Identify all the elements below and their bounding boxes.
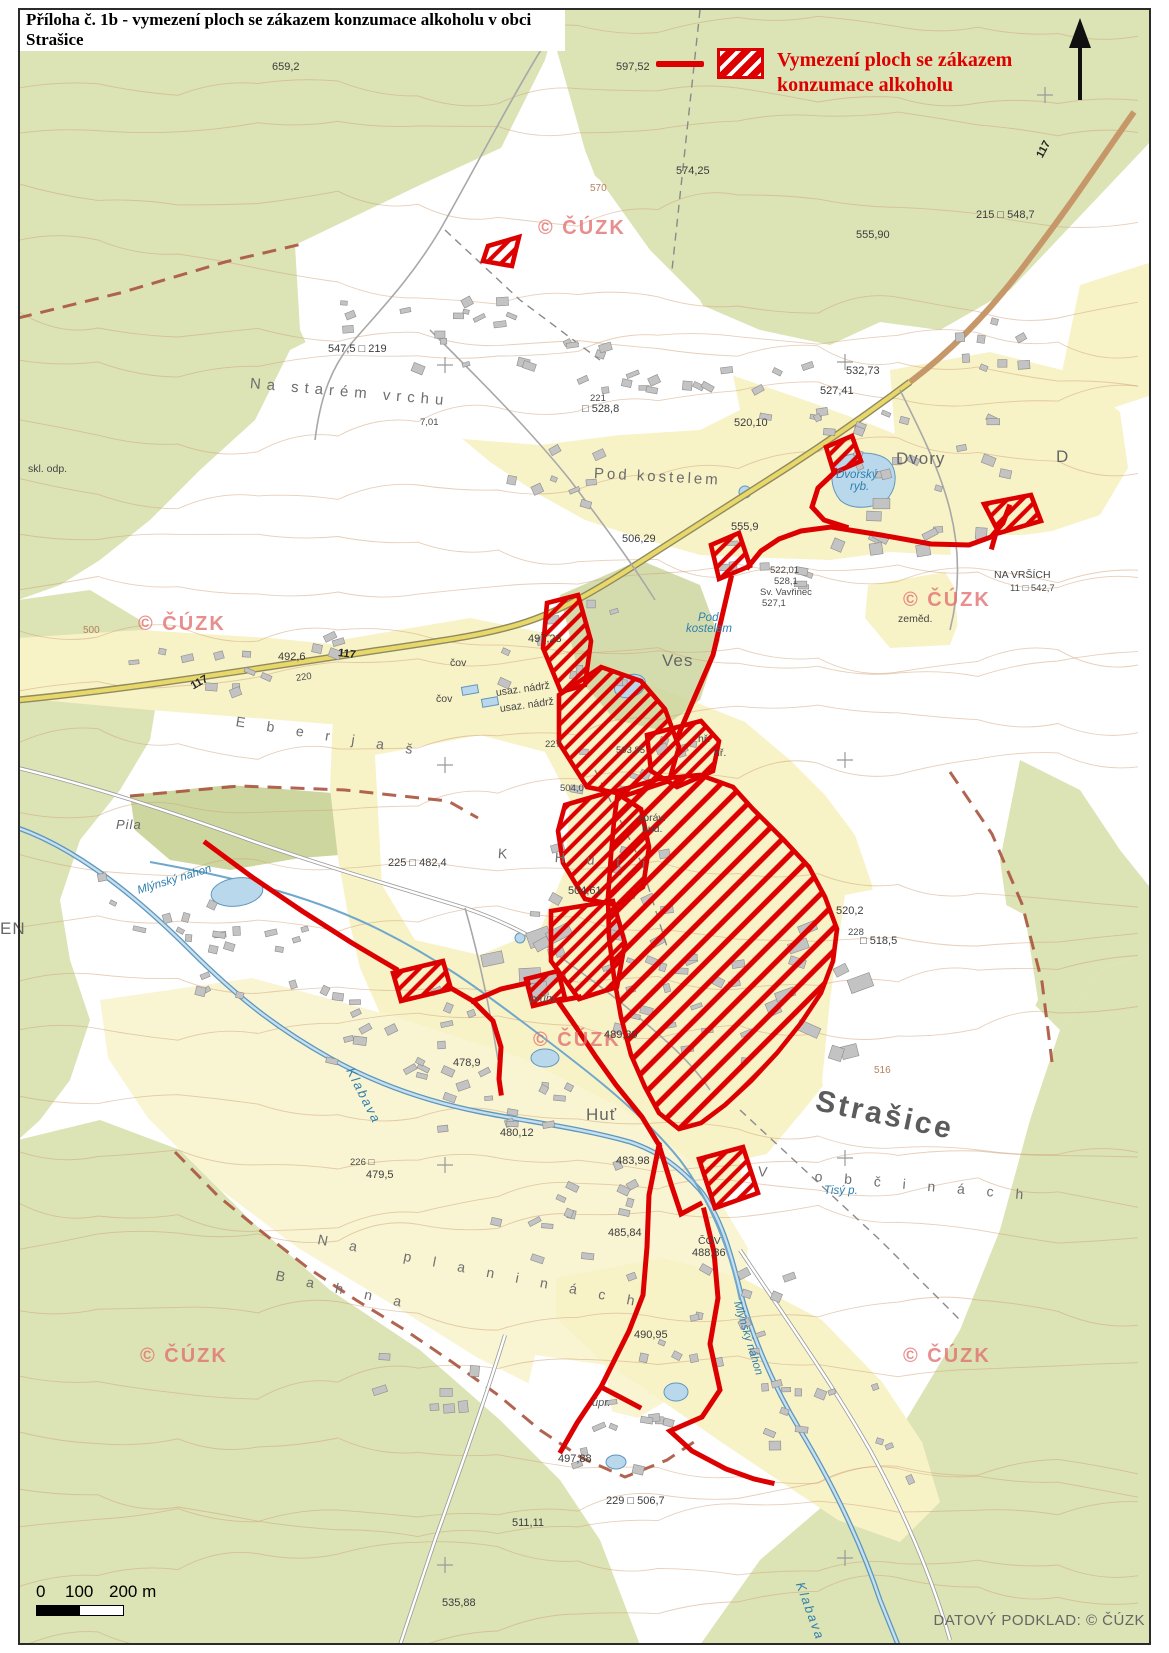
scale-tick-0: 0 [36,1582,65,1602]
north-arrow [1060,12,1100,109]
prohibition-area-swatch [717,48,764,79]
legend-label-line2: konzumace alkoholu [777,74,953,96]
page-title: Příloha č. 1b - vymezení ploch se zákaze… [19,10,565,50]
map-legend: Vymezení ploch se zákazem konzumace alko… [656,48,1012,98]
scale-tick-100: 100 [65,1582,109,1602]
scale-rule [36,1605,124,1616]
topo-basemap [0,0,1169,1653]
scale-labels: 0100200 m [36,1582,156,1602]
prohibition-line-sample [656,61,704,67]
legend-label-line1: Vymezení ploch se zákazem [777,49,1012,71]
legend-label: Vymezení ploch se zákazem konzumace alko… [777,48,1012,98]
scale-bar: 0100200 m [36,1582,156,1616]
scale-tick-200: 200 m [109,1582,156,1602]
map-page: 659,2597,52574,25555,90215 □ 548,7117© Č… [0,0,1169,1653]
map-title-bar: Příloha č. 1b - vymezení ploch se zákaze… [19,9,565,51]
attribution: DATOVÝ PODKLAD: © ČÚZK [933,1612,1145,1629]
